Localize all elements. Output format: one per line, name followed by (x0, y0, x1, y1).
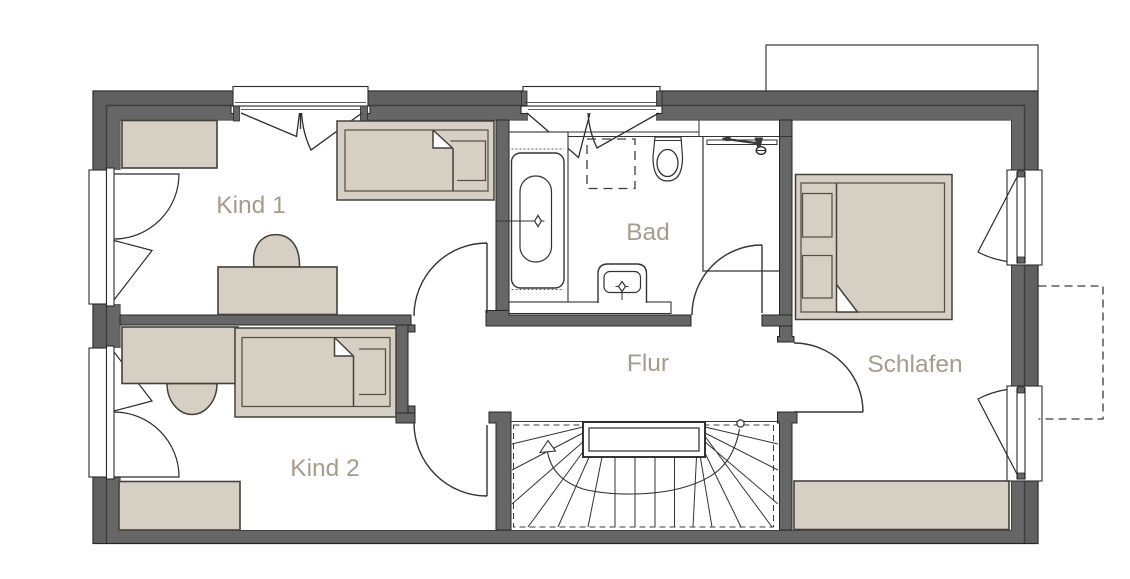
svg-text:Flur: Flur (627, 350, 669, 377)
svg-text:Kind 1: Kind 1 (216, 192, 285, 219)
svg-text:Kind 2: Kind 2 (290, 455, 359, 482)
svg-text:Schlafen: Schlafen (867, 351, 962, 378)
svg-text:Bad: Bad (626, 219, 670, 246)
